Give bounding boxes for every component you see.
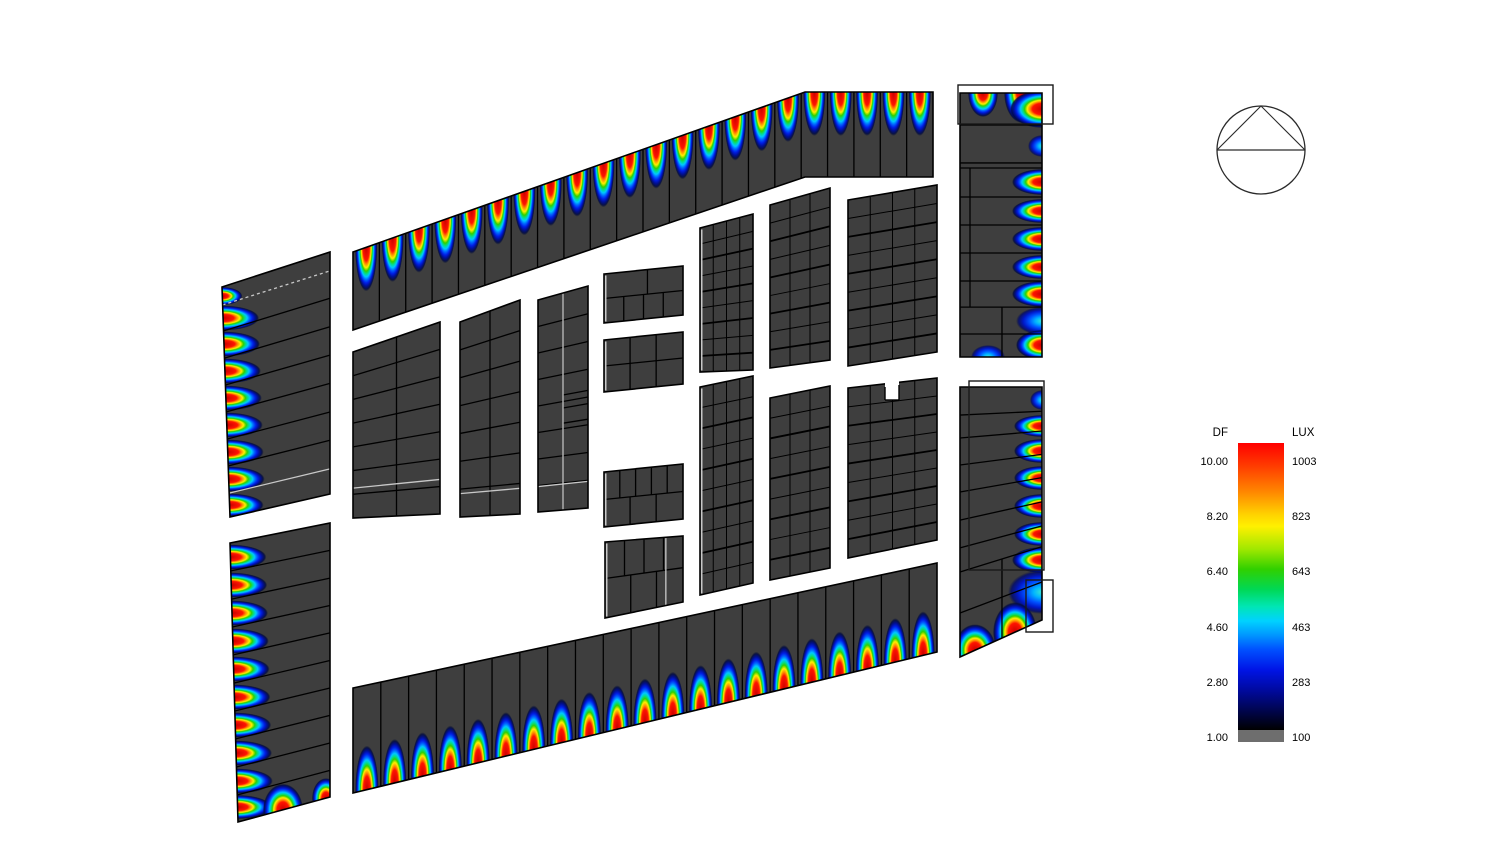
legend-df-header: DF: [1213, 427, 1228, 439]
plan-block-block-d4: [605, 536, 683, 618]
plan-block-block-g2: [848, 370, 937, 558]
north-arrow-icon: [1217, 106, 1305, 194]
plan-block-block-g1: [848, 185, 937, 366]
legend-df-tick: 1.00: [1207, 732, 1228, 744]
plan-block-block-d1: [604, 266, 683, 323]
legend-lux-tick: 100: [1292, 732, 1310, 744]
legend-df-tick: 10.00: [1200, 456, 1228, 468]
legend-df-tick: 4.60: [1207, 622, 1228, 634]
plan-block-block-b1: [460, 300, 520, 517]
legend: DF LUX 10.00 8.20 6.40 4.60 2.80 1.00 10…: [1200, 427, 1316, 744]
daylight-blob: [938, 0, 958, 12]
plan-block-block-f2: [770, 386, 830, 580]
legend-lux-tick: 823: [1292, 511, 1310, 523]
plan-notch: [885, 370, 899, 400]
plan-block-block-c1: [538, 286, 588, 512]
plan-block-block-e2: [700, 376, 753, 595]
legend-df-tick: 2.80: [1207, 677, 1228, 689]
plan-block-left-col-upper: [187, 252, 330, 517]
daylight-analysis-canvas: DF LUX 10.00 8.20 6.40 4.60 2.80 1.00 10…: [0, 0, 1500, 865]
legend-color-bar: [1238, 443, 1284, 730]
legend-lux-tick: 463: [1292, 622, 1310, 634]
plan-block-right-col-upper: [960, 63, 1074, 369]
legend-lux-tick: 1003: [1292, 456, 1316, 468]
legend-lux-tick: 283: [1292, 677, 1310, 689]
plan-block-block-d2: [604, 332, 683, 392]
plan-block-block-e1: [700, 214, 753, 372]
plan-block-left-col-lower: [194, 523, 340, 836]
legend-df-tick: 8.20: [1207, 511, 1228, 523]
legend-lux-tick: 643: [1292, 566, 1310, 578]
plan-block-block-f1: [770, 188, 830, 368]
plan-block-block-d3: [604, 464, 683, 527]
legend-df-tick: 6.40: [1207, 566, 1228, 578]
plan-block-block-a1: [353, 322, 440, 518]
floor-plan: [187, 0, 1076, 836]
legend-below-min-swatch: [1238, 730, 1284, 742]
daylight-plan-svg: DF LUX 10.00 8.20 6.40 4.60 2.80 1.00 10…: [0, 0, 1500, 865]
legend-lux-header: LUX: [1292, 427, 1315, 439]
